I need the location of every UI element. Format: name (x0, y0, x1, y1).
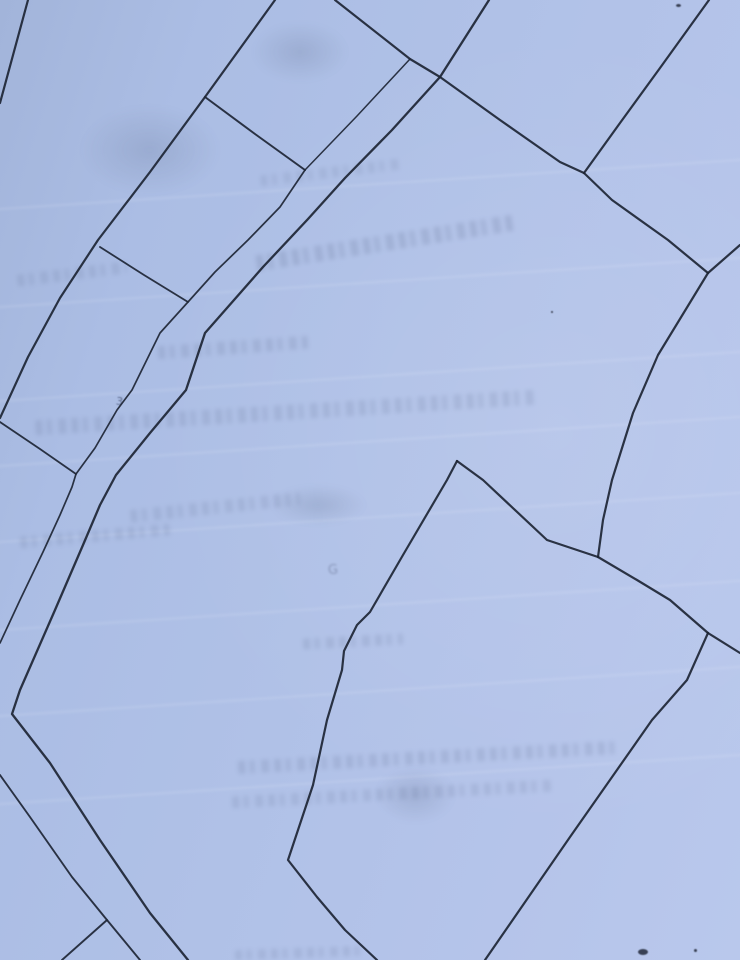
parcel-line-valley-east (457, 461, 598, 557)
parcel-line-east-exit (708, 633, 740, 653)
parcel-boundaries-svg (0, 0, 740, 960)
parcel-line-east-upper (584, 173, 708, 273)
parcel-connector-southwest (0, 422, 76, 474)
parcel-connector-mid (100, 247, 188, 302)
road-east-edge (12, 0, 489, 960)
ink-speck (551, 311, 553, 313)
map-photo: 3G (0, 0, 740, 960)
parcel-line-east (598, 245, 740, 557)
parcel-line-topleft-corner (0, 0, 28, 103)
ink-speck (694, 949, 697, 952)
parcel-line-southeast-mid (598, 557, 708, 633)
parcel-branch-southwest (62, 920, 107, 960)
ink-speck (638, 949, 648, 955)
parcel-line-south-diagonal (485, 633, 708, 960)
parcel-connector-thin (305, 59, 410, 170)
parcel-line-long-west (0, 0, 275, 418)
ink-speck (676, 4, 681, 7)
parcel-line-north-diagonal (335, 0, 584, 173)
parcel-connector-north (205, 97, 305, 170)
road-west-edge (0, 170, 305, 643)
parcel-line-topright (584, 0, 709, 173)
handwritten-letter-g: G (328, 564, 339, 578)
parcel-line-valley-west (288, 461, 457, 960)
